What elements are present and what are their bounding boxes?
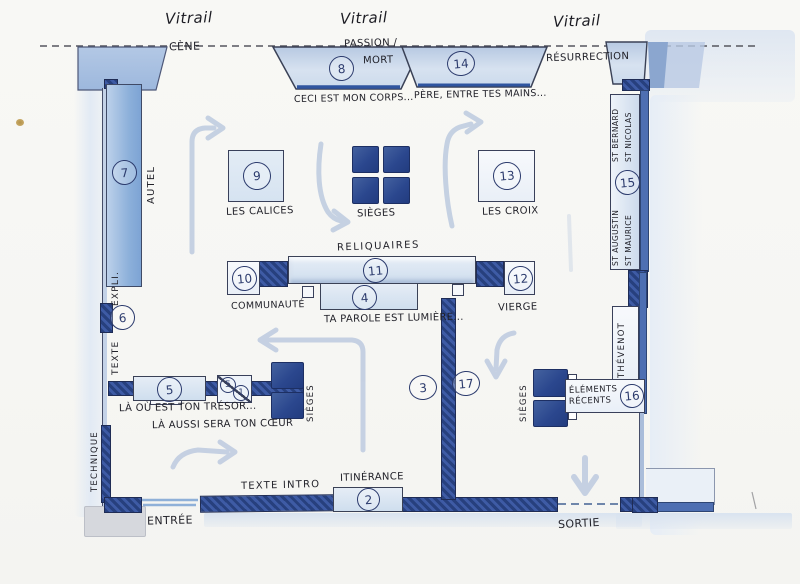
display-case-right-shape [606,42,647,84]
parole-small-square-right [452,284,464,296]
display-case-14-shape [402,47,547,87]
stray-pen-mark [752,492,756,509]
saints-top-line1: ST BERNARD [611,98,620,162]
siege-square [383,177,410,204]
siege-square [352,177,379,204]
saints-bottom-line1: ST AUGUSTIN [611,202,620,266]
flow-arrow [319,144,341,221]
bottom-wall-right [402,497,558,512]
floor-plan-scan: Vitrail Vitrail Vitrail CÈNE PASSION / M… [0,0,800,584]
vitrail-label-3: Vitrail [553,11,601,31]
combo-bottom-number: 1 [233,385,249,401]
vitrail-label-1: Vitrail [165,8,213,28]
sieges-right-label: SIÈGES [519,372,529,422]
recents-line2: RÉCENTS [569,395,618,408]
reliquaires-connector-left [259,261,288,287]
texte-intro-label: TEXTE INTRO [241,479,321,492]
central-divider-wall [441,298,456,500]
siege-square [533,400,568,428]
entree-label: ENTRÉE [147,513,193,527]
sieges-center-label: SIÈGES [357,207,396,219]
siege-square [271,392,304,419]
itinerance-number: 2 [356,487,381,512]
right-wall-lower-line [639,413,644,505]
combo-5-1-box: 5 1 [217,375,252,403]
croix-label: LES CROIX [482,205,539,217]
technique-label: TECHNIQUE [90,432,100,492]
cene-label: CÈNE [169,40,201,54]
texte-expo-lower: TEXTE [111,333,121,375]
parole-small-square-left [302,286,314,298]
passion-label-line2: MORT [363,55,394,67]
autel-label: AUTEL [146,148,157,204]
right-corner-block [632,497,658,513]
siege-square [352,146,379,173]
sieges-center-block [352,146,410,204]
texte-expo-upper: EXPLI. [111,264,121,306]
flow-arrow [192,128,214,252]
flow-arrow [173,450,227,467]
right-wall-strip [640,90,649,272]
thevenot-label: THÉVENOT [617,310,627,378]
siege-square [383,146,410,173]
entrance-opening-lines [140,500,198,505]
communaute-label: COMMUNAUTÉ [231,299,305,312]
sortie-label: SORTIE [558,516,600,531]
sieges-left-block [271,362,304,419]
saints-bottom-line2: ST MAURICE [624,202,633,266]
recents-box: ÉLÉMENTS RÉCENTS 16 [565,379,645,413]
sieges-left-label: SIÈGES [306,372,316,422]
recents-text: ÉLÉMENTS RÉCENTS [569,385,617,408]
left-wall-segment [101,425,111,503]
flow-line-faint [569,216,571,270]
case-14-caption: PÈRE, ENTRE TES MAINS... [414,88,547,101]
reliquaires-connector-right [476,261,504,287]
case-8-caption: CECI EST MON CORPS... [294,92,414,105]
bottom-wall-left [200,494,334,512]
siege-square [533,369,568,397]
passion-label-line1: PASSION / [344,37,398,49]
vitrail-label-2: Vitrail [340,8,388,28]
calices-label: LES CALICES [226,205,294,218]
left-corner-block [104,497,142,513]
itinerance-label: ITINÉRANCE [340,471,404,484]
flow-arrow [445,124,471,226]
siege-square [271,362,304,389]
vierge-label: VIERGE [498,301,538,313]
itinerance-box: 2 [333,487,403,512]
autel-display [106,84,142,287]
sieges-right-block [533,369,568,427]
saints-top-line2: ST NICOLAS [624,98,633,162]
recents-number: 16 [619,383,645,409]
resurrection-label: RÉSURRECTION [546,51,630,64]
